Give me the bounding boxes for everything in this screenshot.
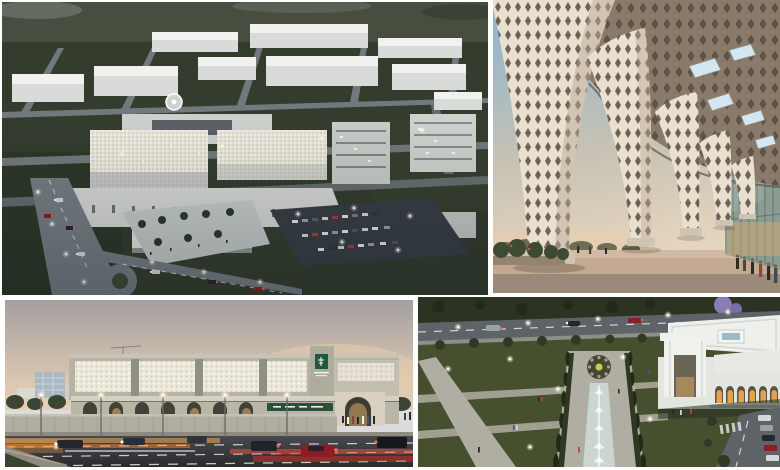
logo-tower (310, 346, 334, 400)
garden-aerial-illustration (418, 297, 780, 467)
roof-skylight (718, 330, 744, 343)
street-elevation-illustration (5, 300, 413, 467)
panel-lattice-canopy-walkway (493, 0, 780, 293)
mashrabiya-panel (75, 361, 131, 392)
collage (0, 0, 780, 470)
pedestrians-sidewalk (404, 412, 411, 420)
panel-hospital-campus-aerial (2, 2, 488, 295)
aerial-campus-illustration (2, 2, 488, 295)
canopy-illustration (493, 0, 780, 293)
mashrabiya-panel (203, 361, 259, 392)
panel-hospital-street-elevation (5, 300, 413, 467)
panel-entrance-garden-aerial (418, 297, 780, 467)
gateway-pavilion (658, 315, 780, 419)
entrance-portico (660, 333, 710, 397)
mashrabiya-panel (267, 361, 307, 392)
entrance-sign (267, 403, 333, 411)
mashrabiya-panel (139, 361, 195, 392)
dusk-overlay (2, 2, 488, 295)
